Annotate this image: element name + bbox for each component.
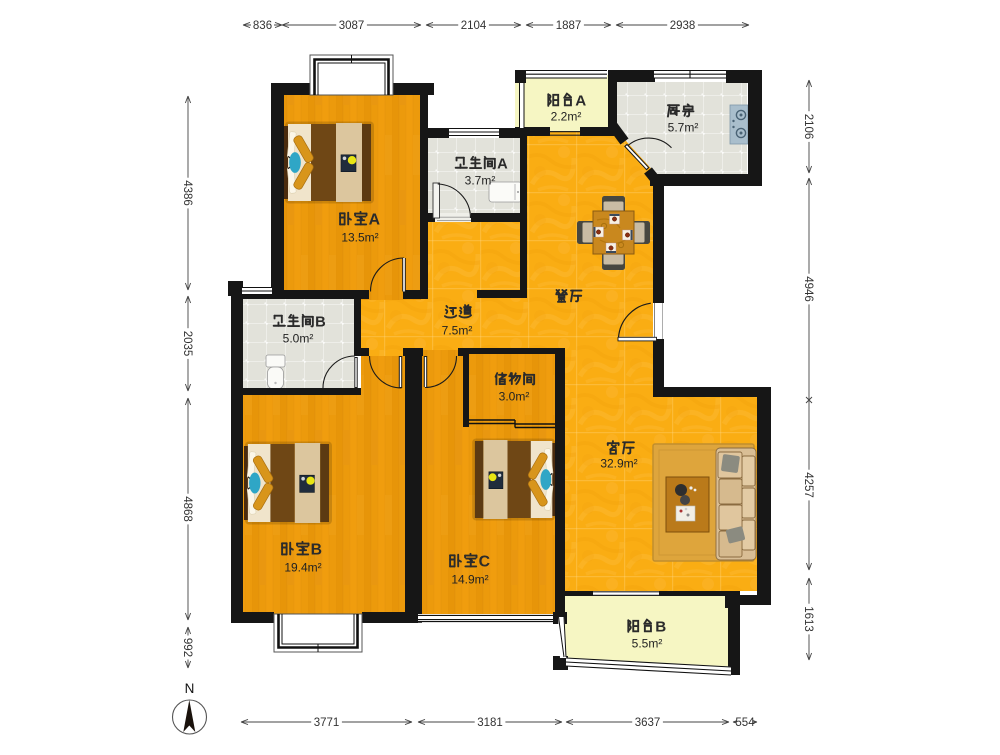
svg-text:3181: 3181 (477, 717, 503, 729)
svg-text:32.9m²: 32.9m² (600, 456, 637, 470)
svg-text:5.5m²: 5.5m² (632, 636, 663, 650)
svg-text:B: B (311, 542, 322, 559)
svg-text:1887: 1887 (556, 20, 582, 32)
svg-text:C: C (479, 554, 490, 571)
svg-text:A: A (497, 156, 508, 172)
svg-text:992: 992 (181, 638, 193, 657)
svg-text:A: A (575, 93, 586, 110)
svg-text:1613: 1613 (802, 606, 814, 632)
svg-text:5.7m²: 5.7m² (668, 120, 699, 134)
svg-text:19.4m²: 19.4m² (284, 560, 321, 574)
svg-text:2938: 2938 (670, 20, 696, 32)
svg-text:2106: 2106 (802, 114, 814, 140)
svg-text:13.5m²: 13.5m² (341, 230, 378, 244)
svg-text:2104: 2104 (461, 20, 487, 32)
svg-text:4257: 4257 (802, 472, 814, 498)
svg-text:554: 554 (735, 717, 755, 729)
svg-text:5.0m²: 5.0m² (283, 331, 314, 345)
svg-text:4946: 4946 (802, 276, 814, 302)
svg-text:N: N (185, 681, 195, 696)
svg-text:3.7m²: 3.7m² (465, 173, 496, 187)
svg-text:4868: 4868 (181, 496, 193, 522)
svg-text:3771: 3771 (314, 717, 340, 729)
svg-text:2.2m²: 2.2m² (551, 109, 582, 123)
svg-text:B: B (655, 619, 666, 636)
svg-text:A: A (369, 212, 380, 229)
svg-text:2035: 2035 (181, 331, 193, 357)
svg-text:836: 836 (253, 20, 272, 32)
svg-text:14.9m²: 14.9m² (451, 572, 488, 586)
svg-text:3.0m²: 3.0m² (499, 389, 530, 403)
svg-text:B: B (315, 314, 326, 330)
svg-text:3637: 3637 (635, 717, 661, 729)
svg-text:3087: 3087 (339, 20, 365, 32)
svg-text:7.5m²: 7.5m² (442, 323, 473, 337)
svg-text:4386: 4386 (181, 180, 193, 206)
